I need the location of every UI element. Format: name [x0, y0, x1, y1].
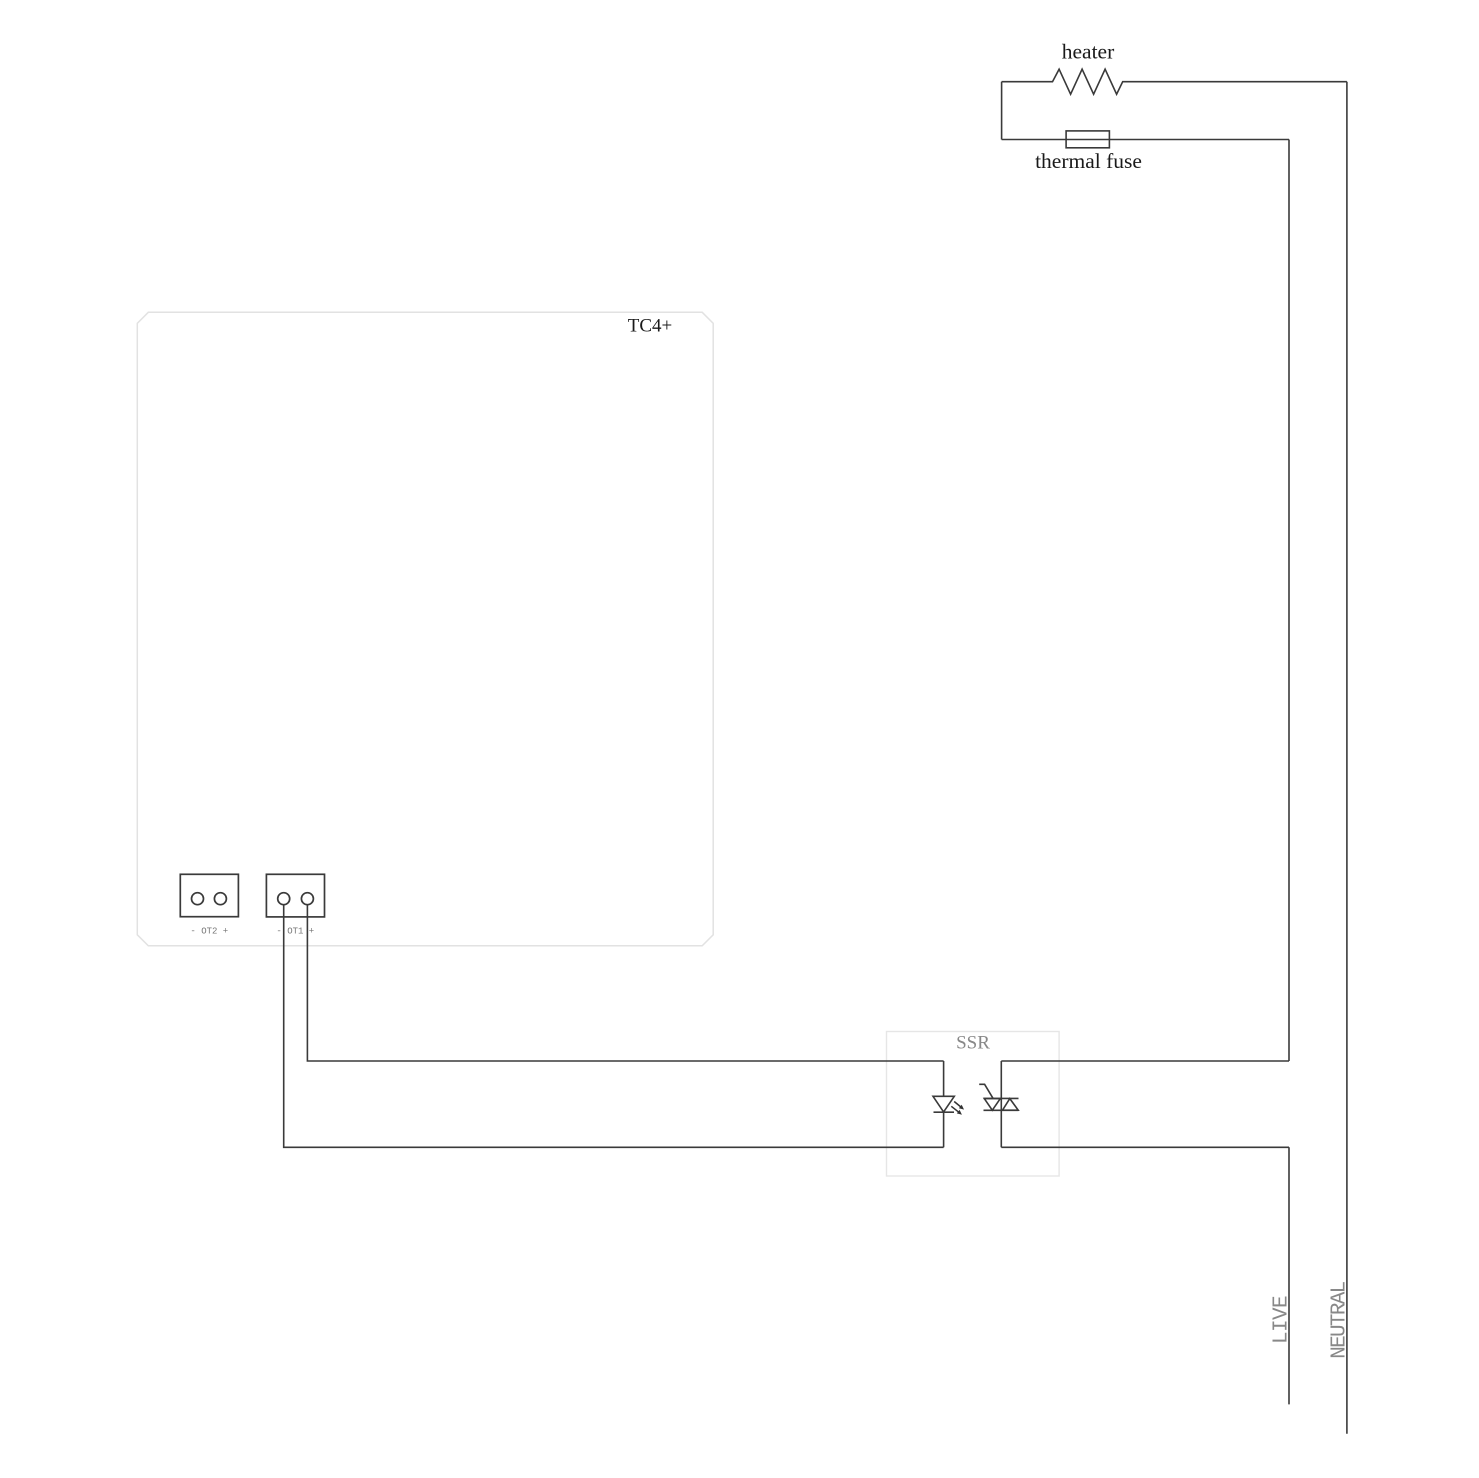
svg-text:heater: heater — [1062, 40, 1115, 64]
svg-text:- OT2 +: - OT2 + — [190, 927, 228, 937]
svg-text:SSR: SSR — [956, 1033, 990, 1054]
svg-text:LIVE: LIVE — [1271, 1296, 1294, 1344]
svg-text:TC4+: TC4+ — [628, 316, 673, 337]
svg-text:- OT1 +: - OT1 + — [276, 927, 314, 937]
svg-text:thermal fuse: thermal fuse — [1035, 149, 1142, 173]
svg-text:NEUTRAL: NEUTRAL — [1329, 1281, 1352, 1358]
